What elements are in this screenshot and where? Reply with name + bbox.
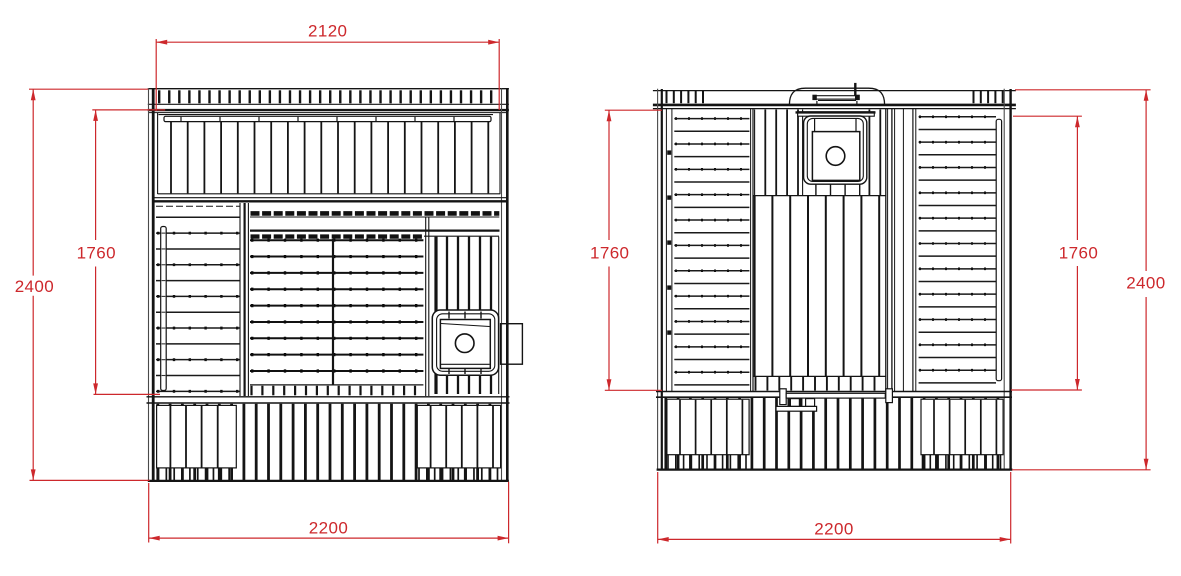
svg-text:1760: 1760: [590, 244, 629, 263]
svg-text:2200: 2200: [814, 519, 853, 538]
svg-text:2400: 2400: [1126, 274, 1165, 293]
svg-text:2200: 2200: [309, 519, 348, 538]
svg-text:2120: 2120: [308, 22, 347, 41]
svg-text:1760: 1760: [1059, 243, 1098, 262]
svg-text:2400: 2400: [15, 277, 54, 296]
svg-text:1760: 1760: [77, 244, 116, 263]
